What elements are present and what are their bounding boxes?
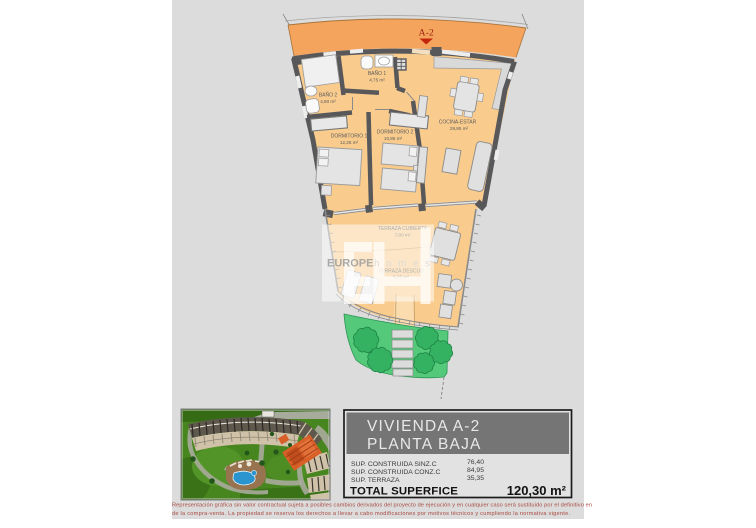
svg-text:EUROPE: EUROPE xyxy=(327,258,373,270)
svg-text:BAÑO 2: BAÑO 2 xyxy=(319,92,338,99)
svg-text:homes: homes xyxy=(374,259,437,270)
svg-text:SUP. CONSTRUIDA CONZ.C: SUP. CONSTRUIDA CONZ.C xyxy=(351,469,440,476)
svg-text:SUP. CONSTRUIDA SINZ.C: SUP. CONSTRUIDA SINZ.C xyxy=(351,461,437,468)
svg-text:de la compra-venta. La propied: de la compra-venta. La propiedad se rese… xyxy=(172,511,570,517)
svg-text:DORMITORIO 1: DORMITORIO 1 xyxy=(331,134,368,140)
svg-text:COCINA-ESTAR: COCINA-ESTAR xyxy=(439,120,477,126)
svg-text:SUP. TERRAZA: SUP. TERRAZA xyxy=(351,477,400,484)
svg-text:4,80 m²: 4,80 m² xyxy=(320,99,336,104)
svg-text:12,25 m²: 12,25 m² xyxy=(340,140,359,145)
svg-text:Representación gráfica sin val: Representación gráfica sin valor contrac… xyxy=(172,503,592,509)
svg-text:4,75 m²: 4,75 m² xyxy=(369,78,385,83)
svg-text:BAÑO 1: BAÑO 1 xyxy=(368,70,387,77)
svg-text:76,40: 76,40 xyxy=(467,459,484,466)
svg-text:10,85 m²: 10,85 m² xyxy=(384,136,403,141)
svg-text:84,95: 84,95 xyxy=(467,467,484,474)
svg-text:PLANTA BAJA: PLANTA BAJA xyxy=(367,436,482,453)
svg-text:VIVIENDA A-2: VIVIENDA A-2 xyxy=(367,418,480,435)
svg-text:120,30 m²: 120,30 m² xyxy=(507,483,567,498)
svg-text:A-2: A-2 xyxy=(419,28,434,39)
svg-text:TOTAL SUPERFICE: TOTAL SUPERFICE xyxy=(350,486,458,498)
svg-text:DORMITORIO 2: DORMITORIO 2 xyxy=(377,130,414,136)
svg-text:29,85 m²: 29,85 m² xyxy=(450,126,469,131)
svg-text:35,35: 35,35 xyxy=(467,475,484,482)
